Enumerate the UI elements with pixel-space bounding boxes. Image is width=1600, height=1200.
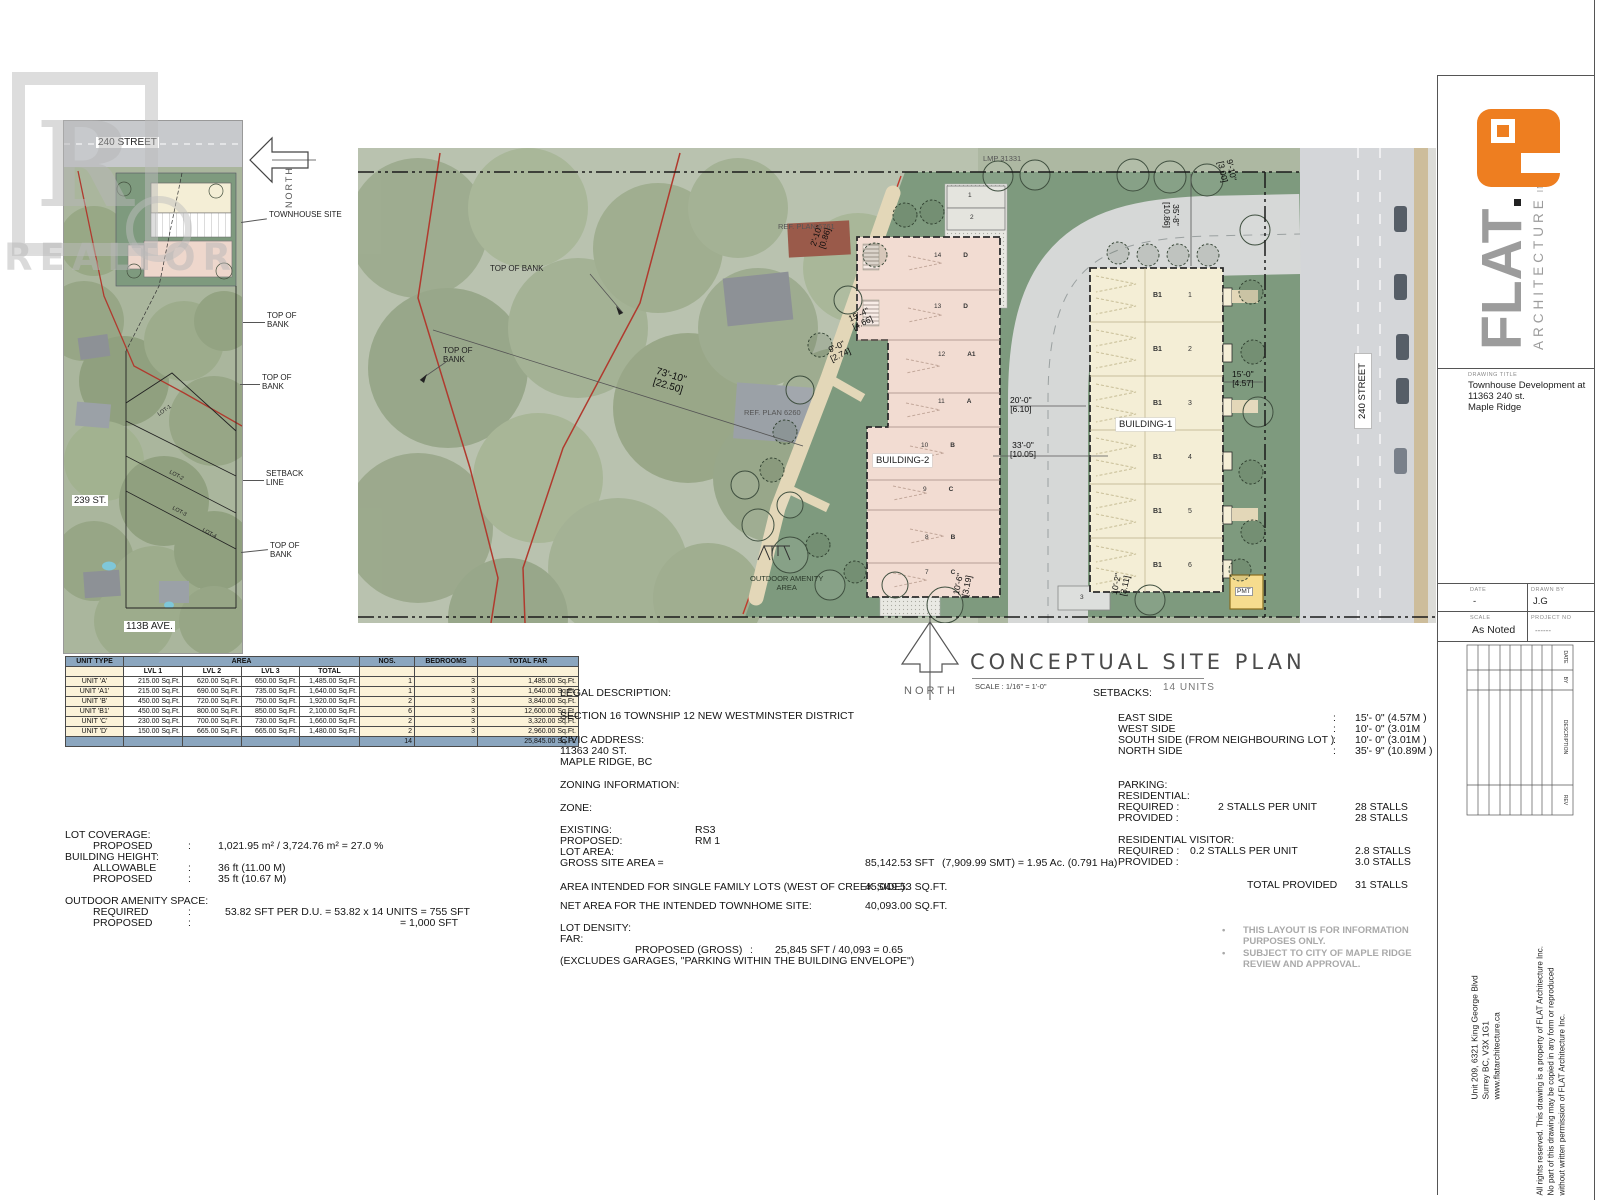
inset-location-map: LOT-1 LOT-2 LOT-3 LOT-4 240 STREET 239 S…	[63, 120, 243, 654]
scale-label: SCALE	[1470, 615, 1491, 621]
titleblock-divider	[1527, 583, 1528, 641]
legal-description-heading: LEGAL DESCRIPTION:	[560, 688, 671, 699]
title-underline	[972, 678, 1204, 679]
flat-architecture-logo: FLAT ARCHITECTUREINC.	[1477, 107, 1560, 350]
dim-15-0: 15'-0"[4.57]	[1232, 370, 1254, 388]
setbacks-heading: SETBACKS:	[1093, 688, 1152, 699]
table-row: UNIT 'A1'215.00 Sq.Ft.690.00 Sq.Ft.735.0…	[66, 687, 579, 697]
unit-area-table: UNIT TYPE AREA NOS. BEDROOMS TOTAL FAR L…	[65, 656, 579, 747]
unit-label: 7C	[925, 569, 955, 576]
unit-label: B15	[1153, 508, 1192, 515]
table-row: UNIT 'A'215.00 Sq.Ft.620.00 Sq.Ft.650.00…	[66, 677, 579, 687]
stall-2-label: 2	[970, 214, 974, 221]
boundary-plan-label: LMP 31331	[983, 154, 1021, 163]
building-1-label: BUILDING-1	[1116, 418, 1175, 431]
table-header-row: UNIT TYPE AREA NOS. BEDROOMS TOTAL FAR	[66, 657, 579, 667]
inset-street-left-label: 239 ST.	[72, 495, 108, 506]
rev-by-label: BY	[1562, 677, 1568, 684]
drawing-title-3: Maple Ridge	[1468, 402, 1521, 413]
rev-rev-label: REV	[1562, 795, 1568, 806]
zone-heading: ZONE:	[560, 803, 592, 814]
north-arrow: NORTH	[890, 618, 975, 703]
note-line-2: PURPOSES ONLY.	[1243, 936, 1326, 947]
inset-north-label: NORTH	[284, 166, 294, 208]
inset-north-arrow: NORTH	[246, 126, 316, 221]
top-of-bank-label-2: TOP OFBANK	[443, 346, 473, 364]
street-240-label: 240 STREET	[1354, 353, 1372, 429]
unit-label: 8B	[925, 534, 955, 541]
leader-line	[243, 480, 264, 481]
titleblock-divider	[1437, 611, 1594, 612]
site-plan-graphic	[358, 148, 1436, 623]
table-row: UNIT 'B1'450.00 Sq.Ft.800.00 Sq.Ft.850.0…	[66, 707, 579, 717]
rev-date-label: DATE	[1562, 651, 1568, 665]
table-row: UNIT 'D'150.00 Sq.Ft.665.00 Sq.Ft.665.00…	[66, 727, 579, 737]
table-subheader-row: LVL 1 LVL 2 LVL 3 TOTAL	[66, 667, 579, 677]
revision-grid: DATE BY DESCRIPTION REV	[1437, 643, 1597, 818]
copyright-vertical: All rights reserved. This drawing is a p…	[1535, 958, 1568, 1196]
dim-9-10: 9'-10"[3.00]	[1216, 159, 1238, 184]
callout-townhouse-site: TOWNHOUSE SITE	[269, 210, 342, 219]
unit-label: 12A1	[938, 351, 976, 358]
top-of-bank-label-1: TOP OF BANK	[490, 264, 544, 273]
outdoor-amenity-label: OUTDOOR AMENITYAREA	[750, 574, 823, 592]
scale-value: As Noted	[1472, 624, 1515, 636]
unit-label: 9C	[923, 486, 953, 493]
unit-label: B13	[1153, 400, 1192, 407]
drawing-sheet: LOT-1 LOT-2 LOT-3 LOT-4 240 STREET 239 S…	[0, 0, 1600, 1200]
leader-line	[240, 384, 260, 385]
site-plan: LMP 31331 REF. PLAN 6761 REF. PLAN 6260 …	[358, 148, 1436, 623]
table-row: UNIT 'C'230.00 Sq.Ft.700.00 Sq.Ft.730.00…	[66, 717, 579, 727]
leader-line	[241, 549, 268, 553]
date-value: -	[1473, 596, 1476, 607]
unit-label: 14D	[934, 252, 968, 259]
legal-section: SECTION 16 TOWNSHIP 12 NEW WESTMINSTER D…	[560, 711, 854, 722]
zoning-heading: ZONING INFORMATION:	[560, 780, 679, 791]
unit-label: 10B	[921, 442, 955, 449]
callout-setback-line: SETBACKLINE	[266, 469, 303, 487]
note-bullet-1: •	[1222, 925, 1225, 936]
callout-top-of-bank-1: TOP OFBANK	[267, 311, 297, 329]
scale-note: SCALE : 1/16" = 1'-0"	[975, 682, 1047, 691]
project-no-label: PROJECT NO	[1531, 615, 1571, 621]
inset-street-top-label: 240 STREET	[96, 137, 159, 148]
note-line-3: SUBJECT TO CITY OF MAPLE RIDGE	[1243, 948, 1412, 959]
unit-label: B11	[1153, 292, 1192, 299]
inset-street-bottom-label: 113B AVE.	[124, 621, 175, 632]
office-address-vertical: Unit 209, 6321 King George Blvd Surrey B…	[1470, 960, 1503, 1100]
sheet-title: CONCEPTUAL SITE PLAN	[970, 650, 1306, 674]
titleblock-divider	[1437, 583, 1594, 584]
dim-33-0: 33'-0"[10.05]	[1010, 441, 1036, 459]
ref-plan-6260-label: REF. PLAN 6260	[744, 408, 801, 417]
table-total-row: 1425,845.00 Sq.Ft.	[66, 737, 579, 747]
unit-label: 13D	[934, 303, 968, 310]
stall-3-label: 3	[1080, 594, 1084, 601]
drawing-title-1: Townhouse Development at	[1468, 380, 1585, 391]
civic-address-2: MAPLE RIDGE, BC	[560, 757, 652, 768]
building-2-label: BUILDING-2	[873, 454, 932, 467]
note-line-4: REVIEW AND APPROVAL.	[1243, 959, 1360, 970]
dim-35-8: 35'-8"[10.86]	[1162, 202, 1180, 228]
unit-label: B14	[1153, 454, 1192, 461]
drawn-by-value: J.G	[1533, 596, 1548, 607]
far-heading: FAR:	[560, 934, 583, 945]
sheet-right-edge	[1594, 0, 1595, 1200]
callout-top-of-bank-3: TOP OFBANK	[270, 541, 300, 559]
logo-flat-word: FLAT	[1477, 187, 1527, 350]
note-line-1: THIS LAYOUT IS FOR INFORMATION	[1243, 925, 1409, 936]
rev-description-label: DESCRIPTION	[1562, 720, 1568, 755]
far-note: (EXCLUDES GARAGES, "PARKING WITHIN THE B…	[560, 956, 914, 967]
titleblock-divider	[1437, 368, 1594, 369]
leader-line	[243, 322, 265, 323]
titleblock-divider	[1437, 641, 1594, 642]
unit-label: B16	[1153, 562, 1192, 569]
table-row: UNIT 'B'450.00 Sq.Ft.720.00 Sq.Ft.750.00…	[66, 697, 579, 707]
dim-20-0: 20'-0"[6.10]	[1010, 396, 1032, 414]
titleblock-top-border	[1437, 75, 1594, 76]
drawn-by-label: DRAWN BY	[1531, 587, 1564, 593]
units-count: 14 UNITS	[1163, 682, 1215, 693]
north-label: NORTH	[904, 685, 958, 697]
titleblock-left-border	[1437, 75, 1438, 1195]
stall-1-label: 1	[968, 192, 972, 199]
logo-architecture-word: ARCHITECTUREINC.	[1531, 187, 1546, 350]
callout-top-of-bank-2: TOP OFBANK	[262, 373, 292, 391]
date-label: DATE	[1470, 587, 1486, 593]
logo-dot	[1514, 199, 1521, 206]
unit-label: 11A	[938, 398, 971, 405]
project-no-value: ------	[1535, 626, 1551, 635]
inset-map-graphic: LOT-1 LOT-2 LOT-3 LOT-4	[64, 121, 242, 653]
flat-logo-glyph-icon	[1477, 109, 1560, 187]
unit-label: B12	[1153, 346, 1192, 353]
drawing-title-2: 11363 240 st.	[1468, 391, 1525, 402]
drawing-title-label: DRAWING TITLE	[1468, 372, 1517, 378]
note-bullet-2: •	[1222, 948, 1225, 959]
pmt-label: PMT	[1235, 587, 1253, 596]
